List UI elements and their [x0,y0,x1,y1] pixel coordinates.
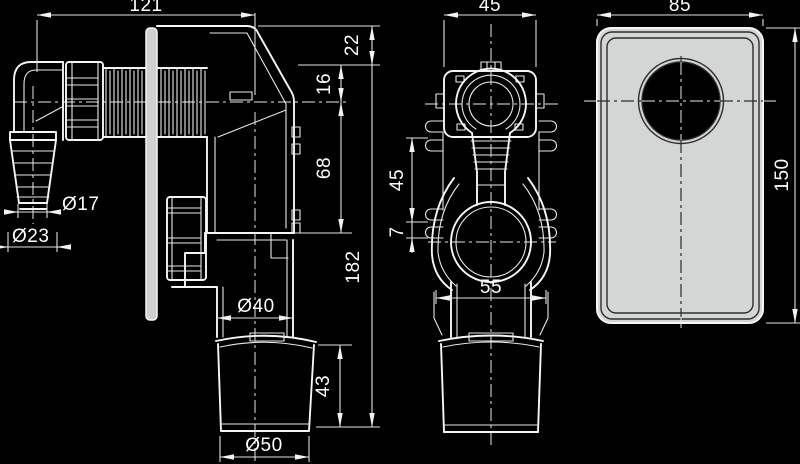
dim-side-body-height-label: 68 [314,157,335,179]
dim-front-flange-width-label: 45 [479,0,501,16]
dim-side-depth-top-label: 22 [342,34,363,56]
technical-drawing-page: 121 22 16 68 182 Ø17 [0,0,800,464]
dim-side-depth-upper-label: 16 [314,73,335,95]
dim-cup-height-label: 43 [313,375,334,397]
dim-cup-dia-label: Ø50 [245,435,282,456]
cover-plate-edge [146,28,157,320]
dim-hose-inner-dia-label: Ø17 [62,194,99,215]
dim-front-body-width-label: 55 [480,277,502,298]
dim-plate-height-label: 150 [772,158,793,191]
dim-front-clip-span-label: 45 [387,169,408,191]
dim-plate-width-label: 85 [669,0,691,16]
dim-hose-outer-dia-label: Ø23 [12,226,49,247]
dim-front-clip-gap-label: 7 [387,226,408,237]
dim-drain-pipe-dia-label: Ø40 [237,296,274,317]
dim-side-total-width-label: 121 [129,0,162,16]
dim-side-total-height-label: 182 [343,250,364,283]
siphon-drawing: 121 22 16 68 182 Ø17 [0,0,800,464]
